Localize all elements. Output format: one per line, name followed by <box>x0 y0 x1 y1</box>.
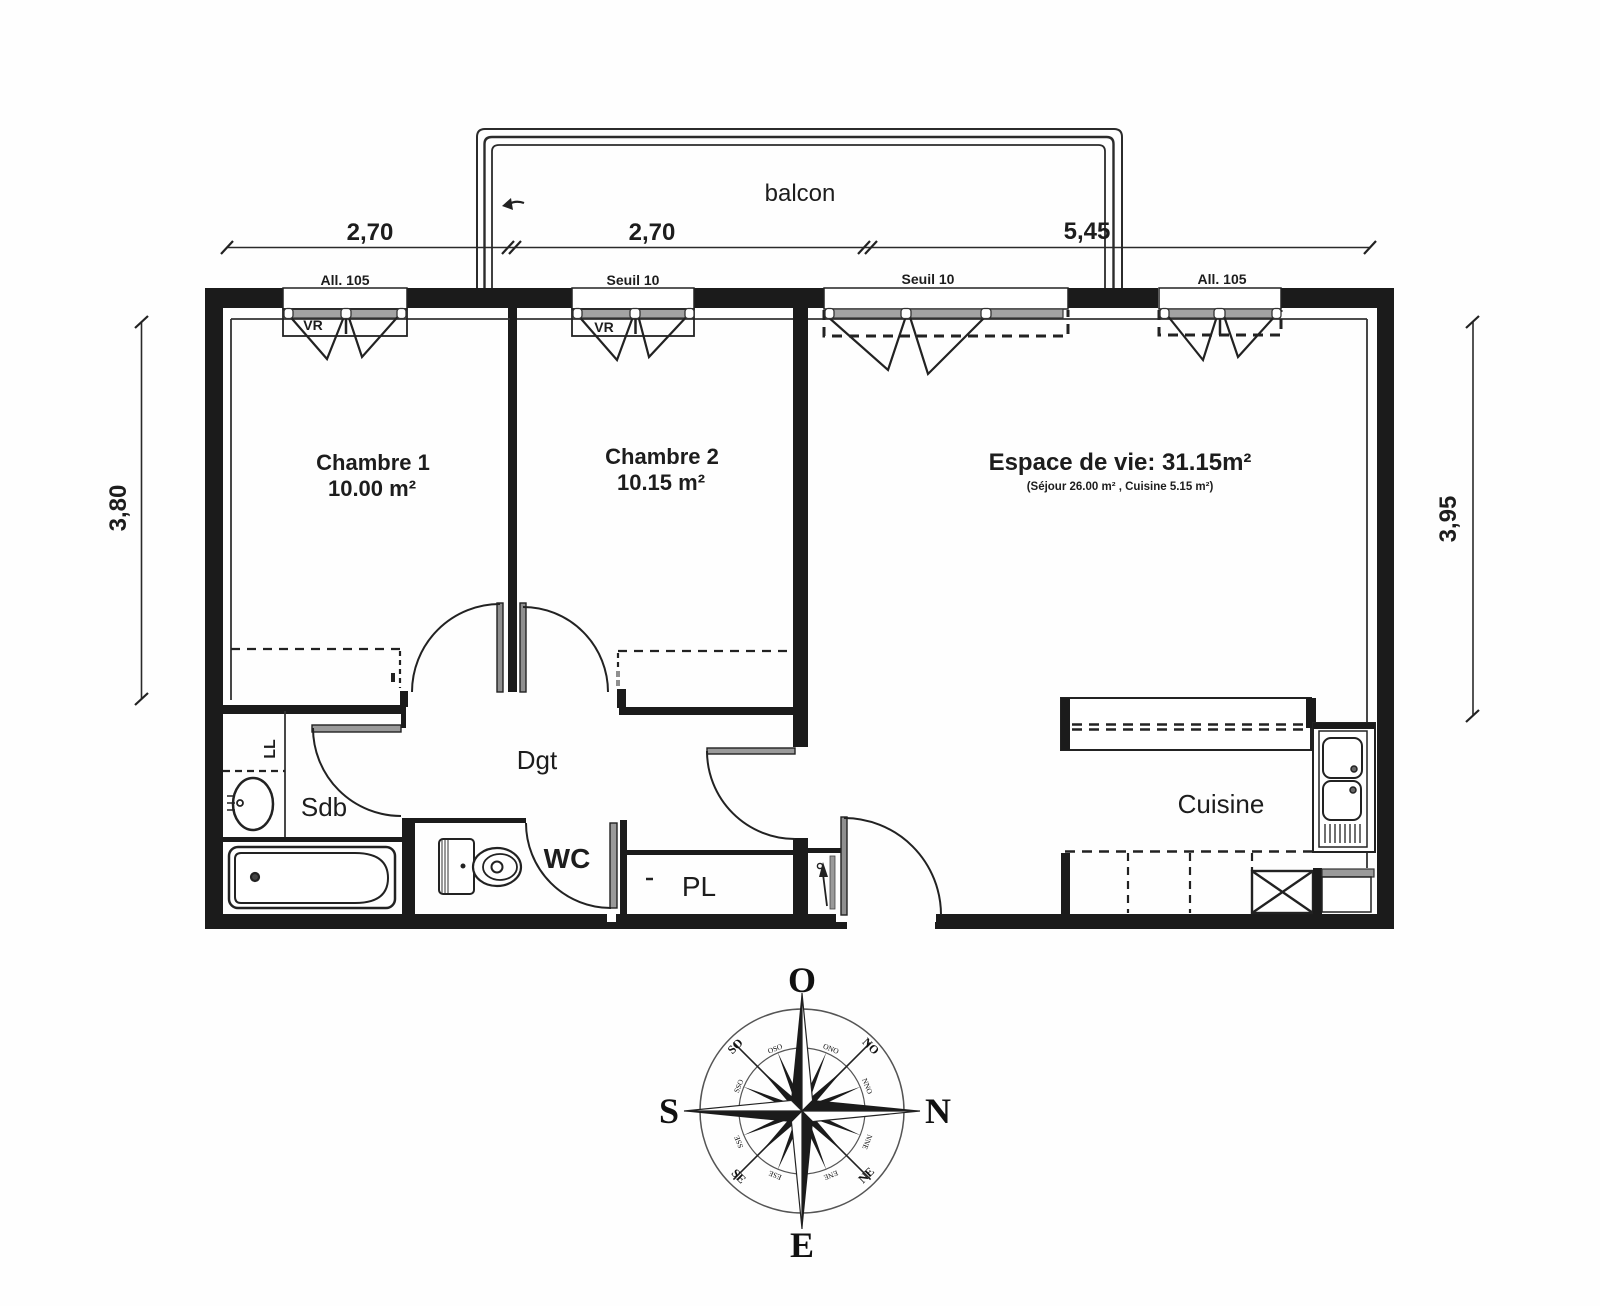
svg-text:ENE: ENE <box>822 1168 839 1182</box>
svg-text:S: S <box>659 1091 679 1131</box>
svg-text:3,80: 3,80 <box>105 485 132 532</box>
svg-text:ONO: ONO <box>822 1041 841 1056</box>
svg-text:VR: VR <box>303 317 322 333</box>
svg-text:WC: WC <box>544 843 591 874</box>
svg-text:NO: NO <box>860 1035 883 1058</box>
svg-text:Chambre 1: Chambre 1 <box>316 450 430 475</box>
svg-text:E: E <box>790 1225 814 1265</box>
svg-text:All. 105: All. 105 <box>320 272 369 288</box>
svg-text:2,70: 2,70 <box>347 219 394 246</box>
svg-text:3,95: 3,95 <box>1435 496 1462 543</box>
svg-text:PL: PL <box>682 871 716 902</box>
svg-text:Espace de vie: 31.15m²: Espace de vie: 31.15m² <box>989 449 1252 476</box>
svg-text:5,45: 5,45 <box>1064 218 1111 245</box>
svg-text:SSE: SSE <box>732 1134 745 1150</box>
svg-text:VR: VR <box>594 319 613 335</box>
svg-text:All. 105: All. 105 <box>1197 271 1246 287</box>
svg-text:10.15 m²: 10.15 m² <box>617 470 705 495</box>
svg-text:Chambre 2: Chambre 2 <box>605 444 719 469</box>
svg-text:10.00 m²: 10.00 m² <box>328 476 416 501</box>
svg-text:SO: SO <box>725 1036 746 1057</box>
svg-text:Dgt: Dgt <box>517 745 558 775</box>
svg-text:LL: LL <box>262 739 279 759</box>
svg-text:Seuil 10: Seuil 10 <box>607 272 660 288</box>
svg-text:balcon: balcon <box>765 180 836 207</box>
svg-text:O: O <box>788 960 816 1000</box>
svg-text:SSO: SSO <box>732 1077 746 1094</box>
svg-text:SE: SE <box>729 1166 749 1186</box>
svg-text:Cuisine: Cuisine <box>1178 789 1265 819</box>
svg-text:2,70: 2,70 <box>629 219 676 246</box>
svg-text:Sdb: Sdb <box>301 792 347 822</box>
svg-text:Seuil 10: Seuil 10 <box>902 271 955 287</box>
svg-text:(Séjour 26.00 m² , Cuisine 5.1: (Séjour 26.00 m² , Cuisine 5.15 m²) <box>1027 481 1214 493</box>
svg-text:N: N <box>925 1091 951 1131</box>
svg-text:NNE: NNE <box>860 1133 874 1151</box>
